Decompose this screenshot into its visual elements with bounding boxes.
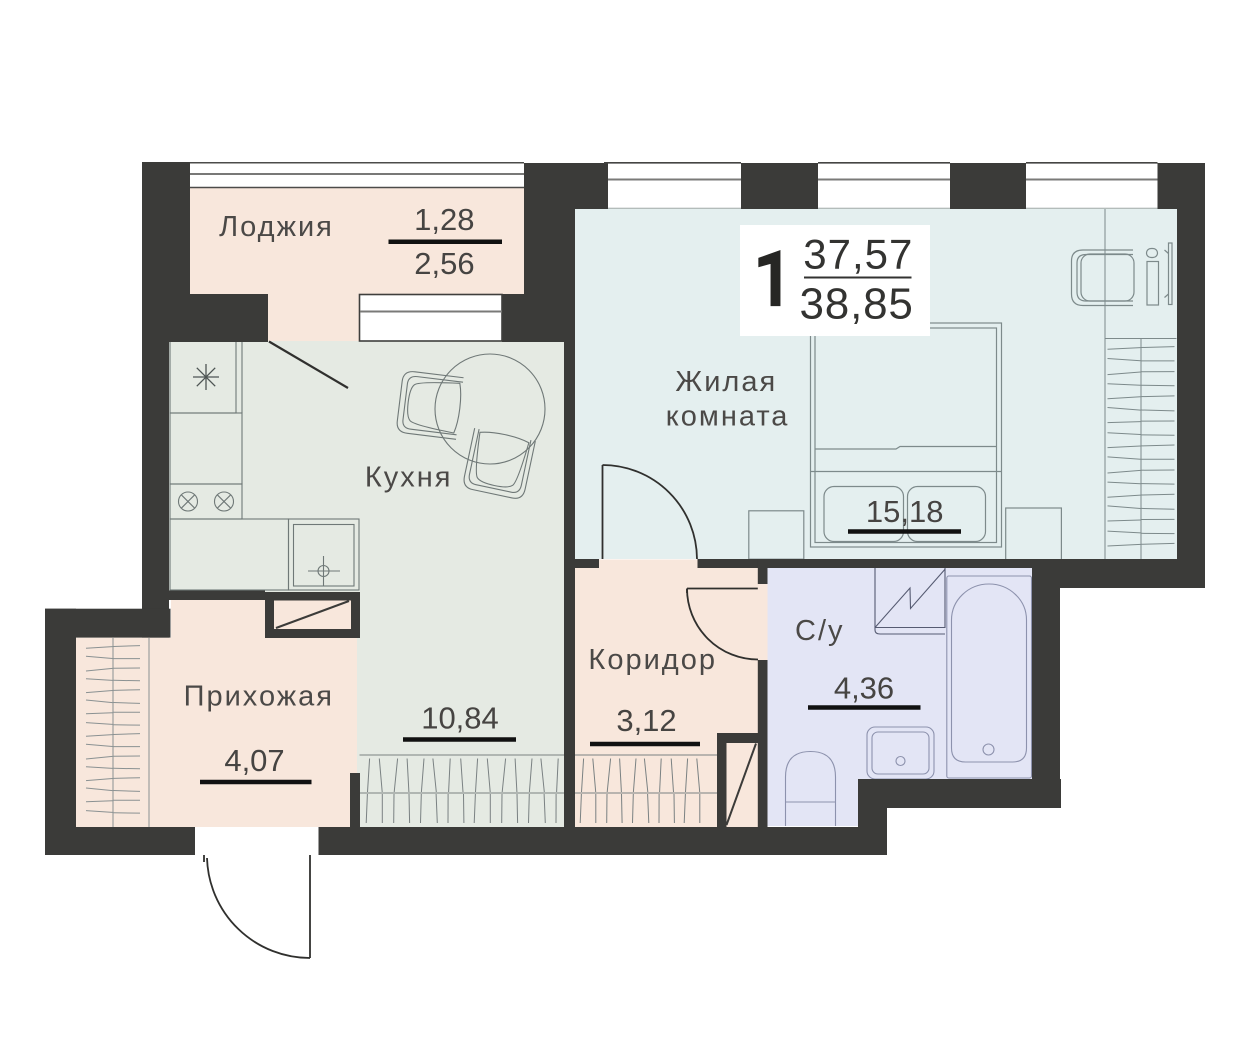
svg-text:4,36: 4,36 [834, 671, 894, 706]
svg-text:комната: комната [666, 401, 790, 433]
svg-text:Коридор: Коридор [588, 644, 717, 676]
svg-text:37,57: 37,57 [803, 231, 913, 278]
svg-text:15,18: 15,18 [866, 494, 944, 529]
svg-text:Жилая: Жилая [675, 366, 777, 398]
svg-text:Прихожая: Прихожая [184, 681, 334, 713]
svg-text:Лоджия: Лоджия [219, 211, 334, 243]
svg-text:4,07: 4,07 [224, 743, 284, 778]
svg-text:38,85: 38,85 [800, 280, 914, 329]
svg-text:1,28: 1,28 [414, 202, 474, 237]
svg-text:3,12: 3,12 [616, 703, 676, 738]
svg-text:С/у: С/у [795, 615, 845, 647]
svg-text:Кухня: Кухня [365, 462, 453, 494]
svg-text:10,84: 10,84 [421, 701, 499, 736]
svg-text:2,56: 2,56 [414, 246, 474, 281]
